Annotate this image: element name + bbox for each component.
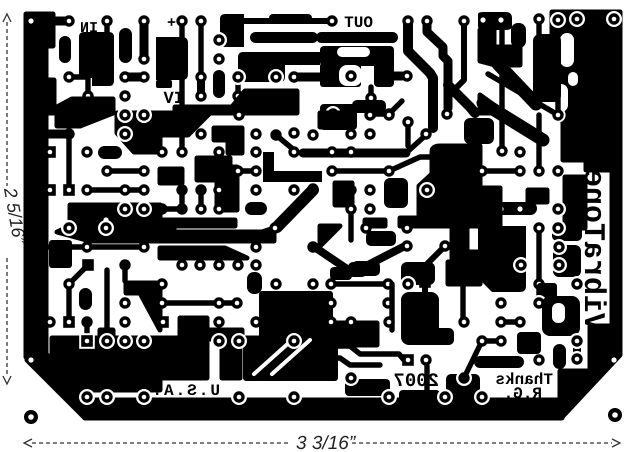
svg-text:+: + bbox=[167, 15, 176, 32]
svg-text:VibraTone: VibraTone bbox=[575, 169, 609, 331]
svg-text:U.S.A.: U.S.A. bbox=[150, 382, 220, 400]
svg-text:OUT: OUT bbox=[344, 14, 373, 32]
svg-text:2007: 2007 bbox=[393, 370, 439, 392]
svg-text:R.G.: R.G. bbox=[504, 385, 542, 403]
svg-text:3 3/16”: 3 3/16” bbox=[296, 433, 357, 452]
